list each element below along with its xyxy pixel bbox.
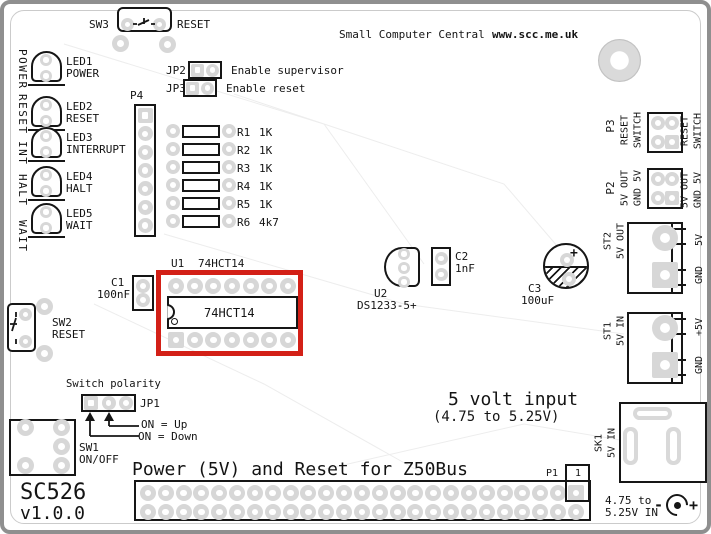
resistor-body	[182, 161, 220, 174]
pad	[17, 457, 34, 474]
pad	[247, 504, 263, 520]
pad	[283, 485, 299, 501]
pad	[652, 315, 678, 341]
polarity-center-dot	[674, 502, 681, 509]
pad	[398, 276, 410, 288]
pad	[354, 504, 370, 520]
pad	[176, 504, 192, 520]
pad	[40, 222, 52, 234]
c1-value: 100nF	[97, 288, 130, 301]
pad	[425, 504, 441, 520]
pad	[390, 485, 406, 501]
pcb-layout-view: Small Computer Central www.scc.me.uk SW3…	[0, 0, 711, 534]
pad	[651, 135, 665, 149]
pad	[222, 124, 236, 138]
pad	[560, 253, 574, 267]
pad	[461, 504, 477, 520]
pad	[532, 485, 548, 501]
pad	[36, 298, 53, 315]
selection-highlight-box[interactable]	[156, 270, 303, 356]
pad	[461, 485, 477, 501]
pad	[119, 396, 133, 410]
p4-header	[134, 104, 156, 237]
pad	[158, 485, 174, 501]
pad	[497, 504, 513, 520]
pad	[390, 504, 406, 520]
p3-header	[647, 112, 683, 153]
pad	[138, 181, 153, 196]
r3-value: 1K	[259, 162, 272, 175]
r1-value: 1K	[259, 126, 272, 139]
pad	[222, 214, 236, 228]
slot-pad	[623, 427, 638, 465]
pad	[514, 485, 530, 501]
pad	[40, 130, 52, 142]
pad	[40, 99, 52, 111]
u1-ref: U1	[171, 257, 184, 270]
pad	[398, 262, 410, 274]
st2-edge-5v: 5V	[694, 234, 707, 246]
pad	[425, 485, 441, 501]
website-text: www.scc.me.uk	[492, 28, 578, 41]
sw2-label: RESET	[52, 328, 85, 341]
pad	[562, 272, 576, 286]
led-cathode-bar	[28, 236, 65, 238]
resistor-body	[182, 143, 220, 156]
r5-ref: R5	[237, 198, 250, 211]
p4-ref: P4	[130, 89, 143, 102]
resistor-body	[182, 179, 220, 192]
pad	[40, 185, 52, 197]
pad	[283, 504, 299, 520]
pad	[318, 485, 334, 501]
pad	[159, 36, 176, 53]
st1-edge-5v: +5V	[694, 318, 707, 336]
led-cathode-bar	[28, 84, 65, 86]
pad	[247, 485, 263, 501]
pad	[138, 145, 153, 160]
pad	[36, 345, 53, 362]
pad	[102, 396, 116, 410]
p1-bottom-pad-row	[140, 504, 584, 520]
p1-top-pad-row	[140, 485, 584, 501]
pad	[193, 504, 209, 520]
mounting-hole	[598, 39, 641, 82]
pad	[53, 438, 70, 455]
sk1-jack-body	[619, 402, 707, 483]
p2-edge-label: 5V OUTGND 5V	[680, 172, 705, 208]
pad	[206, 64, 219, 77]
sw1-label: ON/OFF	[79, 453, 119, 466]
pad	[652, 352, 678, 378]
pad	[138, 108, 153, 123]
c3-value: 100uF	[521, 294, 554, 307]
power-note-line2: (4.75 to 5.25V)	[433, 409, 559, 426]
pad	[407, 504, 423, 520]
pad	[435, 252, 448, 265]
resistor-body	[182, 215, 220, 228]
jp2-desc: Enable supervisor	[231, 64, 344, 77]
pad	[651, 172, 665, 186]
r4-value: 1K	[259, 180, 272, 193]
pad	[158, 504, 174, 520]
pad	[166, 214, 180, 228]
pad	[193, 485, 209, 501]
c2-value: 1nF	[455, 262, 475, 275]
pad	[53, 419, 70, 436]
pad	[479, 504, 495, 520]
led3-func: INTERRUPT	[66, 143, 126, 156]
pad	[407, 485, 423, 501]
pad	[40, 54, 52, 66]
led4-func: HALT	[66, 182, 93, 195]
r3-ref: R3	[237, 162, 250, 175]
power-note-line1: 5 volt input	[448, 389, 578, 411]
resistor-body	[182, 125, 220, 138]
p3-edge-label: RESETSWITCH	[680, 113, 705, 149]
pad	[550, 485, 566, 501]
pad	[166, 142, 180, 156]
pad	[497, 485, 513, 501]
p3-label: RESETSWITCH	[620, 112, 645, 148]
pad	[443, 485, 459, 501]
led-cathode-bar	[28, 160, 65, 162]
pad	[229, 485, 245, 501]
pad	[40, 146, 52, 158]
pad	[300, 485, 316, 501]
r6-value: 4k7	[259, 216, 279, 229]
c2-footprint	[431, 247, 451, 286]
pad	[372, 485, 388, 501]
p1-ref: P1	[546, 468, 558, 480]
polarity-plus: +	[689, 496, 698, 514]
p2-header	[647, 168, 683, 209]
pad	[166, 196, 180, 210]
pad	[40, 206, 52, 218]
r2-ref: R2	[237, 144, 250, 157]
pad	[222, 178, 236, 192]
jp3-jumper	[183, 79, 217, 97]
pad	[372, 504, 388, 520]
pad	[84, 396, 98, 410]
c1-footprint	[132, 275, 154, 311]
p1-pin1-box: 1	[565, 464, 590, 502]
pad	[550, 504, 566, 520]
pad	[229, 504, 245, 520]
r1-ref: R1	[237, 126, 250, 139]
led5-func: WAIT	[66, 219, 93, 232]
p2-label: 5V OUTGND 5V	[620, 170, 645, 206]
jp2-jumper	[188, 61, 222, 79]
pad	[17, 419, 34, 436]
pad	[265, 504, 281, 520]
p2-ref: P2	[604, 181, 618, 194]
jp1-ref: JP1	[140, 397, 160, 410]
pad	[136, 279, 150, 293]
st1-edge-gnd: GND	[694, 356, 707, 374]
pad	[651, 116, 665, 130]
board-version: v1.0.0	[20, 503, 85, 525]
sw3-ref: SW3	[89, 18, 109, 31]
pad	[40, 70, 52, 82]
switch-symbol-icon	[10, 312, 22, 344]
slot-pad	[633, 407, 672, 420]
pad	[300, 504, 316, 520]
pad	[186, 82, 199, 95]
board-title: Power (5V) and Reset for Z50Bus	[132, 459, 468, 481]
pad	[435, 268, 448, 281]
pad	[665, 135, 679, 149]
pad	[652, 262, 678, 288]
pad	[136, 293, 150, 307]
r2-value: 1K	[259, 144, 272, 157]
pad	[166, 178, 180, 192]
pad	[201, 82, 214, 95]
pad	[166, 160, 180, 174]
brand-text: Small Computer Central	[339, 28, 485, 41]
pad	[112, 35, 129, 52]
pad	[318, 504, 334, 520]
pad	[336, 485, 352, 501]
pad	[651, 191, 665, 205]
pad	[398, 248, 410, 260]
p3-ref: P3	[604, 119, 618, 132]
u2-part: DS1233-5+	[357, 299, 417, 312]
pad	[176, 485, 192, 501]
pad	[354, 485, 370, 501]
p1-connector-body	[134, 480, 591, 521]
pad	[443, 504, 459, 520]
r5-value: 1K	[259, 198, 272, 211]
pad	[265, 485, 281, 501]
pad	[222, 160, 236, 174]
pad	[479, 485, 495, 501]
r4-ref: R4	[237, 180, 250, 193]
pad	[140, 504, 156, 520]
pad	[140, 485, 156, 501]
r6-ref: R6	[237, 216, 250, 229]
u1-part-label: 74HCT14	[198, 257, 244, 270]
pad	[665, 172, 679, 186]
pad	[53, 457, 70, 474]
pad	[652, 225, 678, 251]
pad	[211, 504, 227, 520]
led1-func: POWER	[66, 67, 99, 80]
resistor-body	[182, 197, 220, 210]
p1-pin1-number: 1	[575, 468, 581, 480]
slot-pad	[666, 427, 681, 465]
pad	[514, 504, 530, 520]
sk1-label: SK15V IN	[594, 428, 619, 458]
polarity-minus: -	[654, 496, 663, 514]
sw3-label: RESET	[177, 18, 210, 31]
pad	[532, 504, 548, 520]
pad	[222, 196, 236, 210]
switch-symbol-icon	[133, 17, 155, 29]
pad	[138, 200, 153, 215]
st2-label: ST25V OUT	[603, 223, 628, 259]
edge-label-halt: HALT	[16, 174, 29, 207]
input-note-line2: 5.25V IN	[605, 506, 658, 519]
jp1-arrows-icon	[80, 410, 140, 438]
pad	[166, 124, 180, 138]
pad	[665, 116, 679, 130]
st2-edge-gnd: GND	[694, 266, 707, 284]
pad	[211, 485, 227, 501]
pad	[138, 163, 153, 178]
pad	[138, 218, 153, 233]
jp2-ref: JP2	[166, 64, 186, 77]
jp3-desc: Enable reset	[226, 82, 305, 95]
jp1-note-down: ON = Down	[138, 430, 198, 443]
pad	[222, 142, 236, 156]
pad	[138, 126, 153, 141]
pad	[568, 504, 584, 520]
led-cathode-bar	[28, 199, 65, 201]
pad	[40, 115, 52, 127]
led2-func: RESET	[66, 112, 99, 125]
jp1-title: Switch polarity	[66, 378, 161, 391]
pad	[191, 64, 204, 77]
pad	[336, 504, 352, 520]
st1-label: ST15V IN	[603, 316, 628, 346]
pad	[40, 169, 52, 181]
pad	[665, 191, 679, 205]
